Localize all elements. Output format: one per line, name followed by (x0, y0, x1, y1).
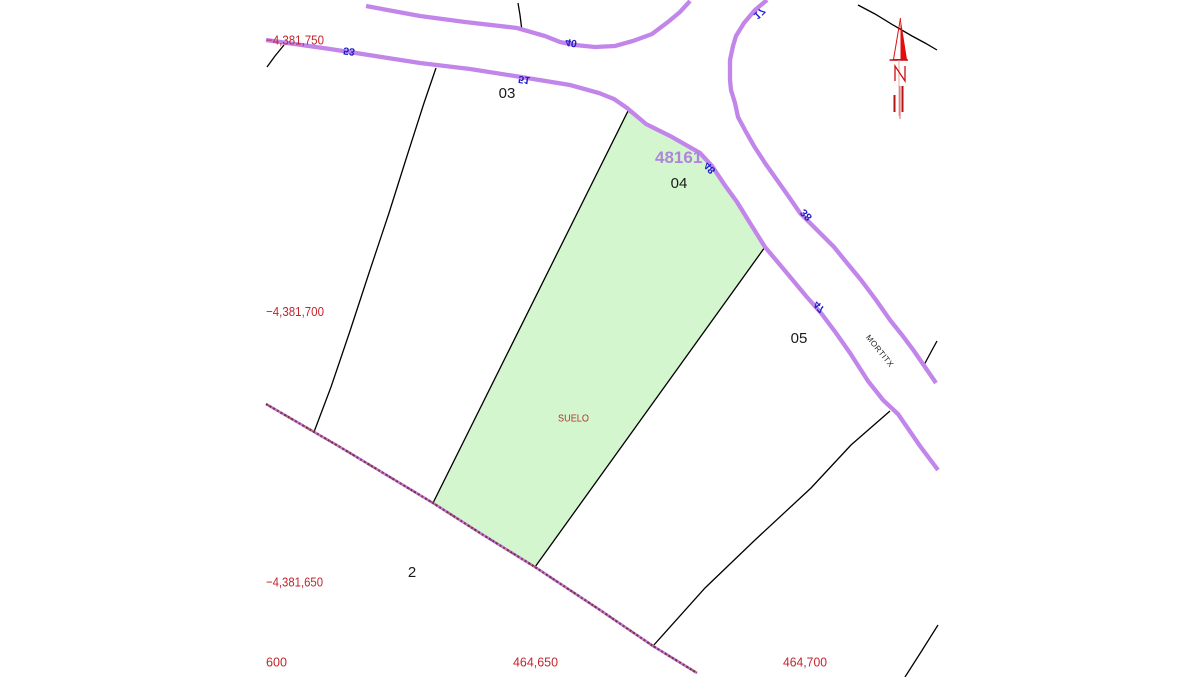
svg-text:05: 05 (791, 330, 808, 347)
svg-text:SUELO: SUELO (558, 414, 589, 425)
svg-text:−4,381,700: −4,381,700 (266, 304, 324, 319)
svg-text:600: 600 (266, 655, 287, 670)
svg-text:2: 2 (408, 564, 416, 581)
svg-text:53: 53 (342, 44, 355, 58)
svg-text:−4,381,650: −4,381,650 (266, 575, 323, 590)
svg-text:−4,381,750: −4,381,750 (266, 33, 324, 48)
svg-text:464,700: 464,700 (783, 655, 827, 670)
svg-text:464,650: 464,650 (513, 655, 558, 670)
svg-text:03: 03 (499, 85, 516, 102)
svg-text:51: 51 (517, 73, 530, 87)
svg-text:40: 40 (564, 36, 578, 50)
svg-text:04: 04 (671, 175, 688, 192)
svg-text:48161: 48161 (655, 148, 702, 167)
